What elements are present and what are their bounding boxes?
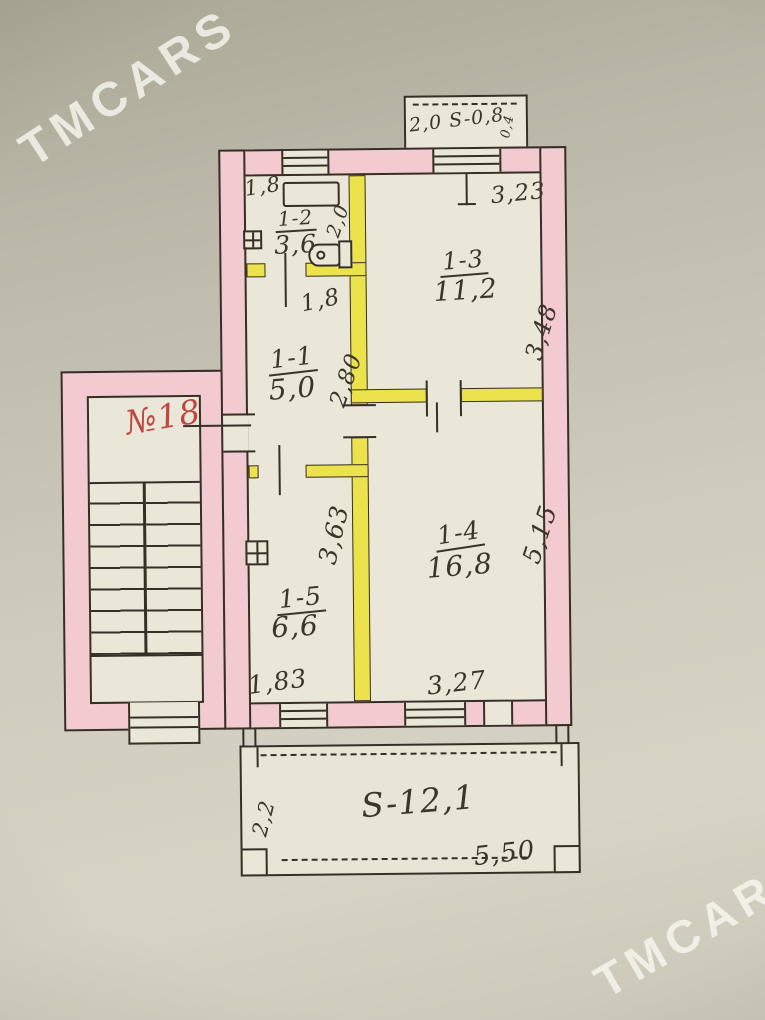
entrance-door-opening bbox=[221, 415, 248, 451]
balcony-width-dim: 5,50 bbox=[472, 837, 536, 870]
balcony-door-opening bbox=[483, 702, 513, 725]
vent-connector-tick bbox=[458, 203, 476, 205]
hall-door-tick-bottom bbox=[343, 436, 376, 438]
dim-room-1-3-width: 3,23 bbox=[490, 180, 547, 208]
partition-kitchen-left bbox=[249, 465, 259, 478]
room-door-tick-right bbox=[460, 380, 462, 416]
partition-1-3-1-4-right bbox=[461, 387, 543, 402]
partition-kitchen-right bbox=[306, 464, 369, 478]
window-room-1-3 bbox=[432, 149, 501, 173]
toilet-tank-icon bbox=[338, 240, 352, 268]
toilet-bowl-hole-icon bbox=[316, 251, 325, 260]
room-area-1-1: 5,0 bbox=[268, 373, 318, 405]
dim-kitchen-width: 1,83 bbox=[246, 665, 308, 698]
wall-south bbox=[224, 699, 572, 730]
dim-room-1-4-width: 3,27 bbox=[426, 667, 488, 699]
floor-plan-photo: 2,0 S-0,8 0,4 bbox=[0, 0, 765, 1020]
partition-bathroom-left bbox=[246, 263, 265, 277]
stair-flight-left bbox=[90, 482, 146, 655]
balcony-column-left bbox=[241, 848, 268, 876]
room-door-tick-left bbox=[426, 381, 428, 417]
sink-icon-kitchen bbox=[245, 540, 268, 565]
sink-icon-bathroom bbox=[243, 230, 262, 249]
stair-flight-right bbox=[146, 482, 202, 655]
balcony-column-right bbox=[554, 845, 581, 873]
room-area-1-5: 6,6 bbox=[270, 611, 319, 642]
balcony-tick-left bbox=[256, 747, 258, 767]
balcony-stub-right bbox=[555, 725, 569, 743]
window-kitchen bbox=[279, 704, 328, 728]
dim-bathroom-width: 1,8 bbox=[243, 174, 282, 200]
partition-1-3-1-4-left bbox=[351, 389, 427, 404]
building-entrance-steps bbox=[128, 702, 200, 745]
balcony-area-label: S-12,1 bbox=[360, 780, 477, 822]
room-area-1-3: 11,2 bbox=[433, 275, 499, 306]
room-door-swing-line bbox=[436, 402, 438, 432]
apartment-floor-plan: 2,0 S-0,8 0,4 bbox=[0, 0, 765, 1020]
room-area-1-2: 3,6 bbox=[274, 231, 318, 258]
window-room-1-4 bbox=[404, 702, 466, 726]
balcony-tick-right bbox=[560, 744, 562, 766]
wall-east bbox=[539, 146, 572, 726]
window-bathroom bbox=[281, 151, 329, 175]
bathtub-icon bbox=[283, 181, 340, 207]
room-area-1-4: 16,8 bbox=[426, 550, 494, 583]
balcony-stub-left bbox=[242, 728, 256, 746]
